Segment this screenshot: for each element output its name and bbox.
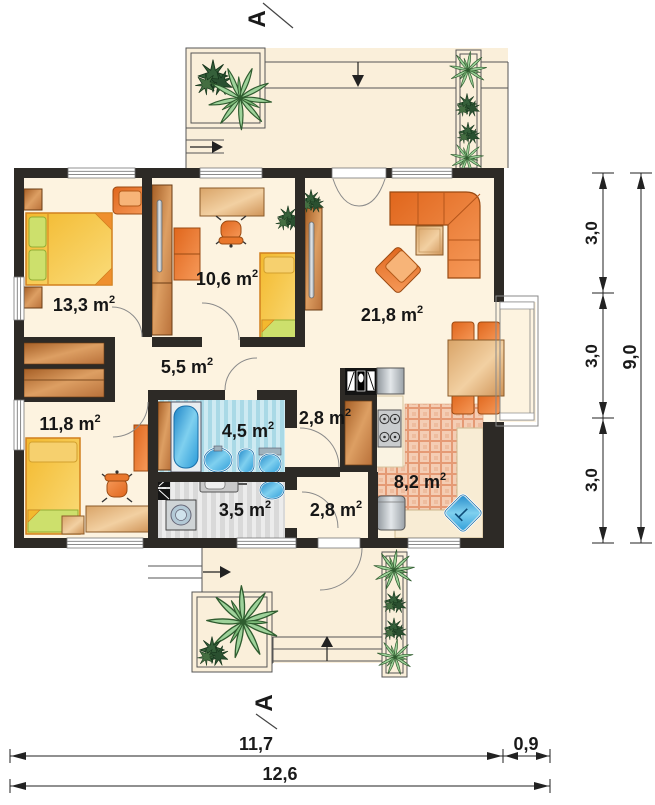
nightstand — [24, 189, 42, 210]
washing-machine — [166, 500, 196, 530]
top-terrace — [186, 48, 508, 174]
floor-plan-drawing: 13,3 m2 10,6 m2 21,8 m2 5,5 m2 11,8 m2 4… — [0, 0, 655, 800]
kitchen-counter-appliances — [345, 368, 404, 395]
room-label: 13,3 m2 — [53, 294, 115, 315]
room-label: 21,8 m2 — [361, 304, 423, 325]
section-letter: A — [251, 694, 278, 711]
toilet — [259, 448, 281, 474]
desk — [86, 506, 150, 532]
window — [68, 168, 135, 178]
window — [237, 538, 296, 548]
cabinet — [134, 425, 148, 471]
dimension-value: 3,0 — [582, 344, 601, 368]
armchair — [113, 187, 147, 214]
dimension-right: 3,0 3,0 3,0 9,0 — [582, 173, 652, 543]
nightstand — [24, 287, 42, 308]
desk — [200, 188, 264, 216]
dimension-bottom: 11,7 0,9 12,6 — [10, 734, 550, 793]
room-label: 4,5 m2 — [222, 420, 274, 441]
floor-plan-page: 13,3 m2 10,6 m2 21,8 m2 5,5 m2 11,8 m2 4… — [0, 0, 655, 800]
dimension-total: 12,6 — [262, 764, 297, 784]
toilet — [260, 481, 284, 499]
double-bed — [26, 213, 112, 285]
room-label: 5,5 m2 — [161, 356, 213, 377]
built-in-closet — [14, 337, 115, 402]
section-marker-bottom: A — [251, 694, 278, 729]
dimension-value: 3,0 — [582, 468, 601, 492]
window — [67, 538, 143, 548]
dimension-value: 0,9 — [513, 734, 538, 754]
room-label: 3,5 m2 — [219, 499, 271, 520]
room-label: 10,6 m2 — [196, 268, 258, 289]
bathtub — [171, 402, 201, 472]
window — [14, 277, 24, 320]
bath-cabinet — [158, 402, 171, 470]
window — [14, 400, 24, 450]
wardrobe — [152, 185, 172, 335]
room-label: 2,8 m2 — [299, 407, 351, 428]
dimension-total: 9,0 — [620, 344, 640, 369]
gas-hob — [378, 410, 401, 447]
single-bed — [260, 253, 298, 345]
wardrobe — [305, 208, 322, 310]
dimension-value: 11,7 — [239, 734, 273, 754]
window — [408, 538, 460, 548]
room-label: 11,8 m2 — [39, 413, 100, 434]
section-marker-top: A — [244, 3, 293, 28]
window — [392, 168, 452, 178]
coffee-table — [416, 226, 443, 255]
dimension-value: 3,0 — [582, 221, 601, 245]
side-table — [62, 516, 84, 534]
room-label: 8,2 m2 — [394, 471, 446, 492]
boiler — [377, 496, 405, 530]
window — [200, 168, 262, 178]
section-letter: A — [244, 10, 271, 27]
room-label: 2,8 m2 — [310, 499, 362, 520]
bidet — [238, 449, 254, 473]
bottom-terrace — [148, 548, 414, 677]
